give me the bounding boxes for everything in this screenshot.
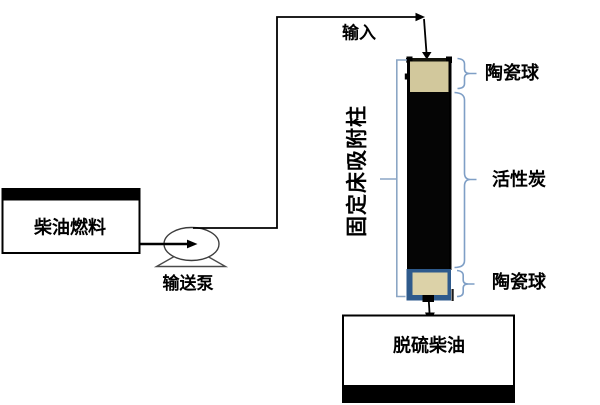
svg-text:输送泵: 输送泵 [163, 273, 214, 293]
svg-text:陶瓷球: 陶瓷球 [492, 271, 547, 292]
svg-text:脱硫柴油: 脱硫柴油 [393, 335, 465, 356]
svg-text:柴油燃料: 柴油燃料 [33, 217, 106, 238]
svg-text:陶瓷球: 陶瓷球 [485, 62, 540, 83]
svg-text:活性炭: 活性炭 [492, 169, 546, 190]
svg-text:输入: 输入 [342, 23, 376, 43]
svg-text:固定床吸附柱: 固定床吸附柱 [345, 105, 369, 237]
